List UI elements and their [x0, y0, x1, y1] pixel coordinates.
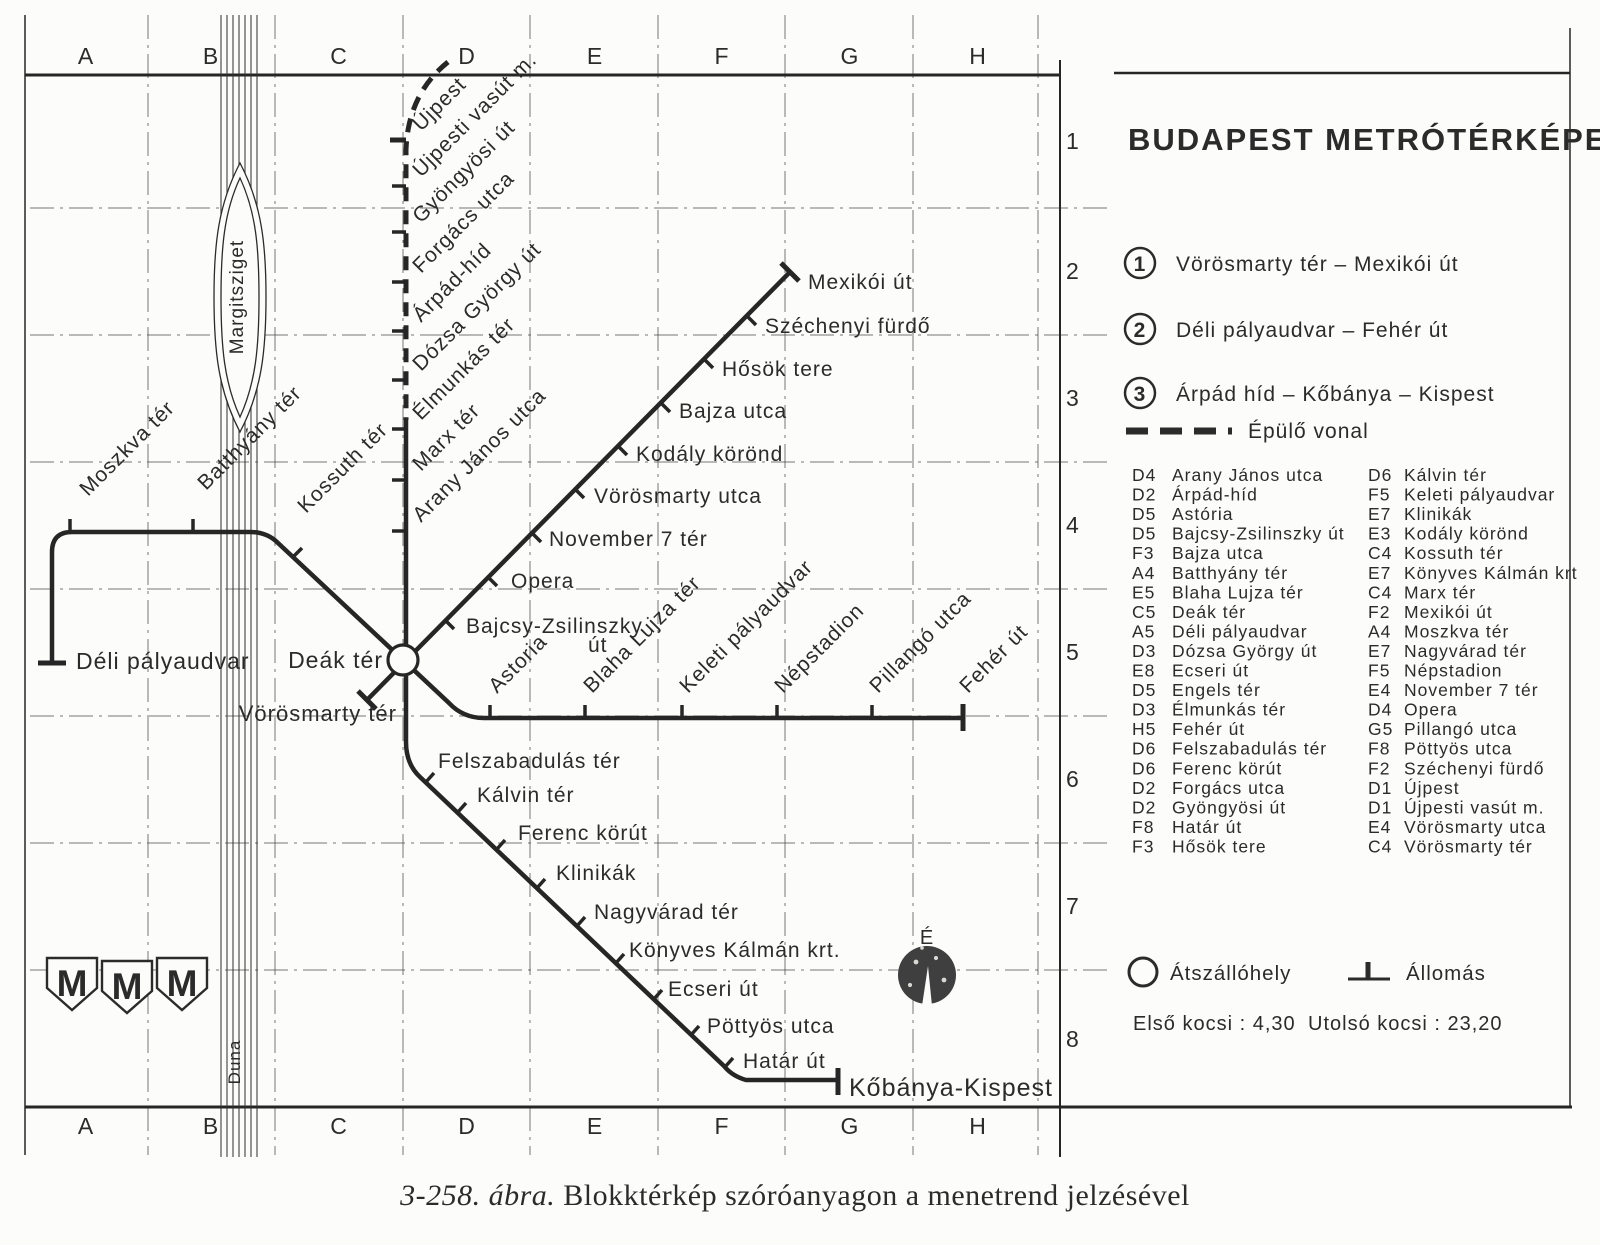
index-code-r-nepstadion: F5 [1368, 661, 1390, 681]
logo-letter: M [57, 963, 88, 1004]
grid-letter-top-d: D [458, 43, 476, 69]
index-code-l-astoria: D5 [1132, 504, 1156, 524]
last-car-time: Utolsó kocsi : 23,20 [1308, 1013, 1503, 1035]
index-code-l-blaha-lujza-ter: E5 [1132, 582, 1155, 602]
index-code-r-marx-ter: C4 [1368, 582, 1392, 602]
interchange-symbol [1129, 958, 1157, 986]
station-index-layer: D4Arany János utcaD2Árpád-hídD5AstóriaD5… [1132, 465, 1578, 856]
line-2-badge-number: 2 [1134, 319, 1147, 342]
index-name-l-feher-ut: Fehér út [1172, 719, 1245, 739]
station-label-vorosmarty-ter: Vörösmarty tér [239, 701, 397, 726]
index-code-l-arpad-hid: D2 [1132, 485, 1156, 505]
grid-letter-top-g: G [841, 43, 860, 69]
index-code-r-opera: D4 [1368, 700, 1392, 720]
station-tick-kodaly-korond [619, 447, 627, 455]
station-tick-hatar-ut [725, 1058, 733, 1067]
station-label-ecseri-ut: Ecseri út [668, 978, 759, 1001]
index-name-r-november-7-ter: November 7 tér [1404, 680, 1539, 700]
index-code-l-dozsa-gyorgy-ut: D3 [1132, 641, 1156, 661]
line-2-route-label: Déli pályaudvar – Fehér út [1176, 319, 1448, 342]
compass-north: É [898, 926, 956, 1006]
index-name-r-kalvin-ter: Kálvin tér [1404, 465, 1487, 485]
index-code-l-batthyany-ter: A4 [1132, 563, 1155, 583]
station-label-mexikoi-ut: Mexikói út [808, 271, 913, 294]
index-name-l-hosok-tere: Hősök tere [1172, 836, 1267, 856]
construction-label: Épülő vonal [1248, 420, 1369, 443]
index-name-l-ecseri-ut: Ecseri út [1172, 661, 1249, 681]
index-code-r-kodaly-korond: E3 [1368, 524, 1391, 544]
station-label-felszabadulas-ter: Felszabadulás tér [438, 750, 621, 773]
index-code-r-moszkva-ter: A4 [1368, 621, 1391, 641]
station-label-kobanya-kispest: Kőbánya-Kispest [849, 1074, 1053, 1102]
index-name-l-felszabadulas-ter: Felszabadulás tér [1172, 739, 1327, 759]
station-label-bajcsy-zsilinszky-2: út [588, 634, 608, 657]
station-label-kodaly-korond: Kodály körönd [636, 443, 783, 466]
grid-letter-bottom-f: F [714, 1113, 729, 1139]
index-name-l-deak-ter: Deák tér [1172, 602, 1246, 622]
index-code-l-elmunkas-ter: D3 [1132, 700, 1156, 720]
index-name-l-dozsa-gyorgy-ut: Dózsa György út [1172, 641, 1317, 661]
index-code-l-deak-ter: C5 [1132, 602, 1156, 622]
index-code-r-vorosmarty-utca: E4 [1368, 817, 1391, 837]
station-label-november-7-ter: November 7 tér [549, 528, 708, 551]
index-code-r-ujpesti-vasut-m: D1 [1368, 797, 1392, 817]
index-name-l-elmunkas-ter: Élmunkás tér [1172, 700, 1286, 720]
index-name-l-deli-palyaudvar: Déli pályaudvar [1172, 621, 1308, 641]
station-label-szechenyi-furdo: Széchenyi fürdő [765, 315, 931, 338]
station-tick-klinikak [537, 879, 545, 888]
grid-number-2: 2 [1066, 258, 1080, 284]
grid-number-3: 3 [1066, 385, 1080, 411]
grid-number-1: 1 [1066, 128, 1080, 154]
stations-layer: ÚjpestÚjpesti vasút m.Gyöngyösi útForgác… [38, 48, 1053, 1102]
index-code-l-arany-janos-utca: D4 [1132, 465, 1156, 485]
index-code-r-ujpest: D1 [1368, 778, 1392, 798]
index-name-r-szechenyi-furdo: Széchenyi fürdő [1404, 758, 1545, 778]
index-code-r-klinikak: E7 [1368, 504, 1391, 524]
station-label-moszkva-ter: Moszkva tér [75, 396, 179, 500]
station-label-deak-ter: Deák tér [288, 647, 383, 673]
metro-routes-layer [52, 62, 963, 1080]
index-code-l-bajza-utca: F3 [1132, 543, 1154, 563]
station-tick-pottyos-utca [691, 1026, 699, 1035]
line-3-route-label: Árpád híd – Kőbánya – Kispest [1176, 383, 1495, 406]
station-tick-kossuth-ter [293, 548, 302, 557]
grid-letter-top-e: E [587, 43, 603, 69]
scanned-page: AABBCCDDEEFFGGHH12345678 Margitsziget Du… [0, 0, 1600, 1245]
index-name-r-kodaly-korond: Kodály körönd [1404, 524, 1529, 544]
station-label-bajza-utca: Bajza utca [679, 400, 787, 423]
grid-number-7: 7 [1066, 893, 1080, 919]
index-code-r-kalvin-ter: D6 [1368, 465, 1392, 485]
station-label-feher-ut: Fehér út [955, 620, 1032, 697]
map-title: BUDAPEST METRÓTÉRKÉPE [1128, 121, 1600, 157]
station-tick-szechenyi-furdo [748, 317, 756, 325]
station-tick-konyves-kalman-krt [616, 954, 624, 963]
index-code-l-forgacs-utca: D2 [1132, 778, 1156, 798]
index-code-l-bajcsy-zsilinszky-ut: D5 [1132, 524, 1156, 544]
station-label-kalvin-ter: Kálvin tér [477, 784, 575, 807]
station-label-kossuth-ter: Kossuth tér [293, 418, 392, 517]
index-name-l-arpad-hid: Árpád-híd [1172, 485, 1258, 505]
figure-caption: 3-258. ábra. Blokktérkép szóróanyagon a … [399, 1179, 1190, 1212]
grid-letter-bottom-a: A [78, 1113, 94, 1139]
index-name-r-keleti-palyaudvar: Keleti pályaudvar [1404, 485, 1555, 505]
station-label: Állomás [1406, 962, 1486, 985]
index-code-r-keleti-palyaudvar: F5 [1368, 485, 1390, 505]
grid-letter-bottom-c: C [330, 1113, 348, 1139]
grid-letter-bottom-b: B [203, 1113, 219, 1139]
margitsziget-label: Margitsziget [227, 240, 248, 354]
station-label-ferenc-korut: Ferenc körút [518, 822, 648, 845]
grid-letter-top-b: B [203, 43, 219, 69]
station-tick-opera [489, 578, 497, 586]
compass-texture-dot [914, 960, 919, 965]
index-code-l-gyongyosi-ut: D2 [1132, 797, 1156, 817]
station-label-konyves-kalman-krt: Könyves Kálmán krt. [629, 939, 841, 962]
index-name-r-pottyos-utca: Pöttyös utca [1404, 739, 1512, 759]
index-code-l-ecseri-ut: E8 [1132, 661, 1155, 681]
grid-number-8: 8 [1066, 1026, 1080, 1052]
index-name-r-nepstadion: Népstadion [1404, 661, 1503, 681]
station-label-klinikak: Klinikák [556, 862, 636, 885]
duna-label: Duna [225, 1040, 244, 1085]
station-label-opera: Opera [511, 570, 574, 593]
station-label-bajcsy-zsilinszky: Bajcsy-Zsilinszky [466, 615, 643, 638]
station-tick-kalvin-ter [458, 803, 466, 812]
compass-texture-dot [934, 956, 938, 960]
index-code-r-szechenyi-furdo: F2 [1368, 758, 1390, 778]
grid-letter-top-f: F [714, 43, 729, 69]
station-label-hatar-ut: Határ út [743, 1050, 826, 1073]
index-name-r-klinikak: Klinikák [1404, 504, 1472, 524]
index-code-l-deli-palyaudvar: A5 [1132, 621, 1155, 641]
caption-text: Blokktérkép szóróanyagon a menetrend jel… [555, 1179, 1190, 1212]
line-1-route-label: Vörösmarty tér – Mexikói út [1176, 253, 1459, 276]
station-label-deli-palyaudvar: Déli pályaudvar [76, 648, 250, 674]
grid-letter-bottom-h: H [969, 1113, 987, 1139]
index-name-l-ferenc-korut: Ferenc körút [1172, 758, 1282, 778]
station-tick-bajza-utca [662, 404, 670, 412]
metro-map-figure: AABBCCDDEEFFGGHH12345678 Margitsziget Du… [0, 0, 1600, 1245]
station-label-hosok-tere: Hősök tere [722, 358, 834, 381]
mmm-logo: M M M [47, 958, 207, 1013]
index-name-r-moszkva-ter: Moszkva tér [1404, 621, 1509, 641]
index-name-l-blaha-lujza-ter: Blaha Lujza tér [1172, 582, 1304, 602]
index-code-r-vorosmarty-ter: C4 [1368, 836, 1392, 856]
station-tick-bajcsy-zsilinszky [446, 621, 454, 629]
index-name-l-gyongyosi-ut: Gyöngyösi út [1172, 797, 1286, 817]
north-label: É [920, 926, 934, 949]
index-code-l-felszabadulas-ter: D6 [1132, 739, 1156, 759]
compass-texture-dot [908, 983, 912, 987]
compass-texture-dot [942, 978, 947, 983]
station-label-pottyos-utca: Pöttyös utca [707, 1015, 835, 1038]
station-tick-vorosmarty-utca [576, 490, 584, 498]
line-1-badge-number: 1 [1134, 253, 1147, 276]
index-name-l-forgacs-utca: Forgács utca [1172, 778, 1285, 798]
index-name-l-astoria: Astória [1172, 504, 1233, 524]
grid-number-6: 6 [1066, 766, 1080, 792]
index-code-r-pottyos-utca: F8 [1368, 739, 1390, 759]
station-tick-felszabadulas-ter [426, 773, 434, 782]
interchange-label: Átszállóhely [1170, 962, 1291, 985]
index-code-r-kossuth-ter: C4 [1368, 543, 1392, 563]
index-code-r-konyves-kalman-krt: E7 [1368, 563, 1391, 583]
index-code-l-feher-ut: H5 [1132, 719, 1156, 739]
index-code-r-mexikoi-ut: F2 [1368, 602, 1390, 622]
index-code-l-engels-ter: D5 [1132, 680, 1156, 700]
index-code-l-hosok-tere: F3 [1132, 836, 1154, 856]
grid-letter-top-c: C [330, 43, 348, 69]
station-tick-hosok-tere [705, 360, 713, 368]
index-code-r-pillango-utca: G5 [1368, 719, 1393, 739]
caption-number: 3-258. ábra. [399, 1179, 555, 1212]
grid-letter-top-a: A [78, 43, 94, 69]
index-name-r-marx-ter: Marx tér [1404, 582, 1476, 602]
index-name-r-opera: Opera [1404, 700, 1458, 720]
index-name-r-konyves-kalman-krt: Könyves Kálmán krt [1404, 563, 1578, 583]
index-name-r-nagyvarad-ter: Nagyvárad tér [1404, 641, 1527, 661]
line-3-badge-number: 3 [1134, 383, 1147, 406]
index-name-r-ujpesti-vasut-m: Újpesti vasút m. [1404, 796, 1544, 817]
grid-number-4: 4 [1066, 512, 1080, 538]
index-name-r-pillango-utca: Pillangó utca [1404, 719, 1517, 739]
grid-letter-bottom-g: G [841, 1113, 860, 1139]
station-label-nagyvarad-ter: Nagyvárad tér [594, 901, 739, 924]
first-car-time: Első kocsi : 4,30 [1133, 1013, 1296, 1035]
station-label-astoria: Astoria [484, 630, 551, 697]
index-name-l-engels-ter: Engels tér [1172, 680, 1261, 700]
index-code-r-november-7-ter: E4 [1368, 680, 1391, 700]
logo-letter: M [112, 966, 143, 1007]
interchange-circle-deak-ter [388, 645, 418, 675]
index-name-r-mexikoi-ut: Mexikói út [1404, 602, 1493, 622]
station-label-vorosmarty-utca: Vörösmarty utca [594, 485, 762, 508]
index-name-l-bajcsy-zsilinszky-ut: Bajcsy-Zsilinszky út [1172, 524, 1345, 544]
index-name-r-vorosmarty-utca: Vörösmarty utca [1404, 817, 1546, 837]
grid-letter-bottom-e: E [587, 1113, 603, 1139]
grid-letter-top-h: H [969, 43, 987, 69]
index-name-l-hatar-ut: Határ út [1172, 817, 1242, 837]
index-name-l-bajza-utca: Bajza utca [1172, 543, 1264, 563]
index-name-l-batthyany-ter: Batthyány tér [1172, 563, 1288, 583]
index-name-r-kossuth-ter: Kossuth tér [1404, 543, 1504, 563]
grid-letter-bottom-d: D [458, 1113, 476, 1139]
station-tick-november-7-ter [533, 534, 541, 542]
index-name-l-arany-janos-utca: Arany János utca [1172, 465, 1323, 485]
index-name-r-vorosmarty-ter: Vörösmarty tér [1404, 836, 1533, 856]
logo-letter: M [167, 963, 198, 1004]
index-code-l-ferenc-korut: D6 [1132, 758, 1156, 778]
index-code-l-hatar-ut: F8 [1132, 817, 1154, 837]
index-name-r-ujpest: Újpest [1404, 777, 1460, 798]
grid-number-5: 5 [1066, 639, 1080, 665]
station-tick-ferenc-korut [497, 840, 505, 849]
station-tick-nagyvarad-ter [577, 917, 585, 926]
index-code-r-nagyvarad-ter: E7 [1368, 641, 1391, 661]
